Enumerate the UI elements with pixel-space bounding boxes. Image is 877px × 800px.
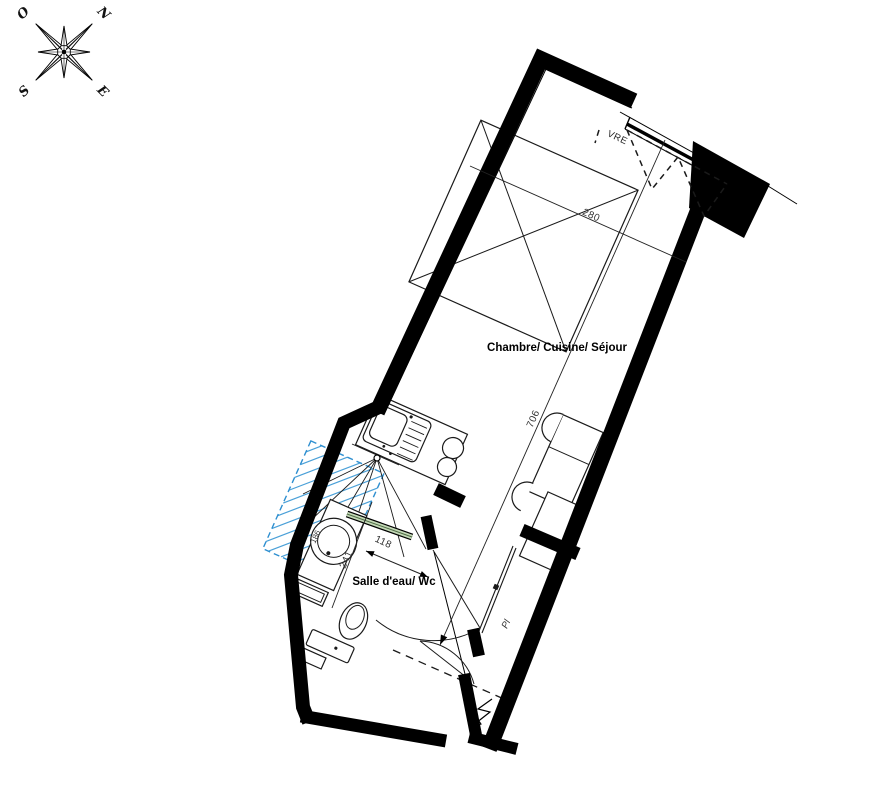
bathroom-door — [376, 550, 480, 641]
compass-north-label: N — [93, 3, 114, 24]
dim-280-label: 280 — [580, 207, 601, 224]
compass-east-label: E — [93, 82, 112, 101]
floor-plan-svg: N O S E — [0, 0, 877, 800]
floor-plan-page: N O S E — [0, 0, 877, 800]
chair-lower — [512, 482, 533, 511]
dim-118-label: 118 — [373, 534, 393, 551]
dim-118-arrow-left — [366, 551, 375, 557]
dim-line-280 — [470, 166, 686, 262]
main-room-label: Chambre/ Cuisine/ Séjour — [487, 342, 627, 354]
closet-sliding-doors — [479, 546, 516, 633]
dim-706-label: 706 — [525, 408, 542, 429]
compass-west-label: O — [14, 4, 33, 23]
hall-dashed-line — [393, 650, 513, 703]
closet-label: Pl — [500, 617, 514, 630]
compass-south-label: S — [16, 83, 33, 100]
compass-center — [62, 50, 66, 54]
window-label: VRE — [605, 128, 629, 147]
shower-door-pivot — [374, 455, 380, 461]
bathroom-label: Salle d'eau/ Wc — [352, 576, 436, 588]
bed — [409, 120, 638, 352]
compass-rose: N O S E — [14, 3, 113, 101]
dim-line-118 — [366, 551, 428, 577]
